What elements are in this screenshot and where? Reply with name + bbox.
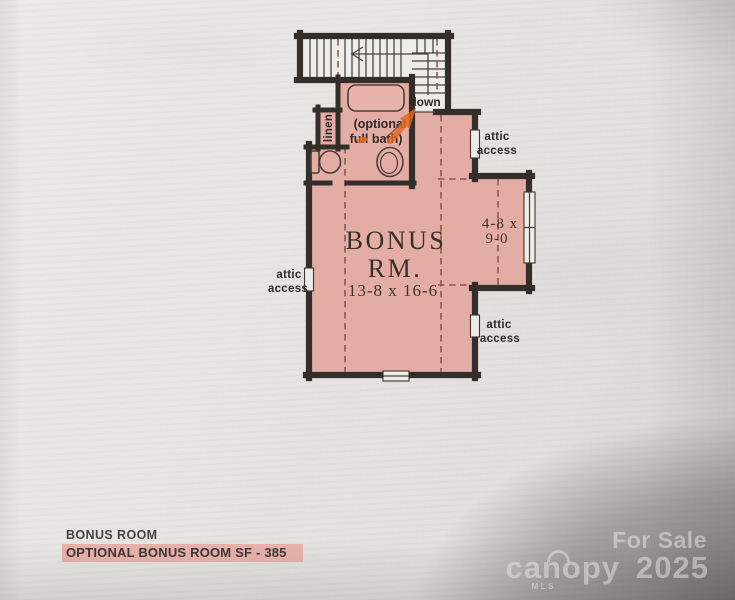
watermark: For Sale canopy MLS 2025 bbox=[506, 527, 710, 591]
bottom-vent bbox=[383, 371, 409, 381]
room-name-line2: RM. bbox=[368, 254, 422, 283]
nook-dimensions-line1: 4-8 x bbox=[482, 216, 518, 232]
nook-dimensions-line2: 9-0 bbox=[486, 231, 509, 247]
footer-labels: BONUS ROOM OPTIONAL BONUS ROOM SF - 385 bbox=[62, 528, 303, 562]
bathtub bbox=[348, 85, 404, 111]
attic-access-top-right-line1: attic bbox=[484, 131, 509, 143]
window bbox=[524, 192, 535, 263]
down-label: down bbox=[409, 95, 440, 109]
footer-room-title: BONUS ROOM bbox=[66, 528, 303, 542]
attic-access-bottom-right-line1: attic bbox=[486, 319, 511, 331]
toilet bbox=[311, 151, 341, 173]
sink bbox=[377, 148, 403, 177]
attic-opening-bottom-right bbox=[471, 315, 480, 337]
linen-label: linen bbox=[323, 114, 335, 142]
attic-access-left-line2: access bbox=[268, 283, 308, 295]
watermark-year: 2025 bbox=[636, 555, 709, 581]
room-dimensions: 13-8 x 16-6 bbox=[348, 281, 438, 300]
scanned-floor-plan-page: { "plan": { "stairs": { "down_label": "d… bbox=[0, 0, 735, 600]
attic-access-top-right-line2: access bbox=[477, 145, 517, 157]
floor-plan-svg: down (optional full bath) linen attic ac… bbox=[0, 0, 735, 600]
attic-access-left-line1: attic bbox=[276, 269, 301, 281]
watermark-brand-block: canopy MLS bbox=[506, 555, 621, 591]
footer-sf-highlight: OPTIONAL BONUS ROOM SF - 385 bbox=[62, 544, 303, 562]
room-name-line1: BONUS bbox=[346, 226, 447, 255]
attic-access-bottom-right-line2: access bbox=[480, 333, 520, 345]
